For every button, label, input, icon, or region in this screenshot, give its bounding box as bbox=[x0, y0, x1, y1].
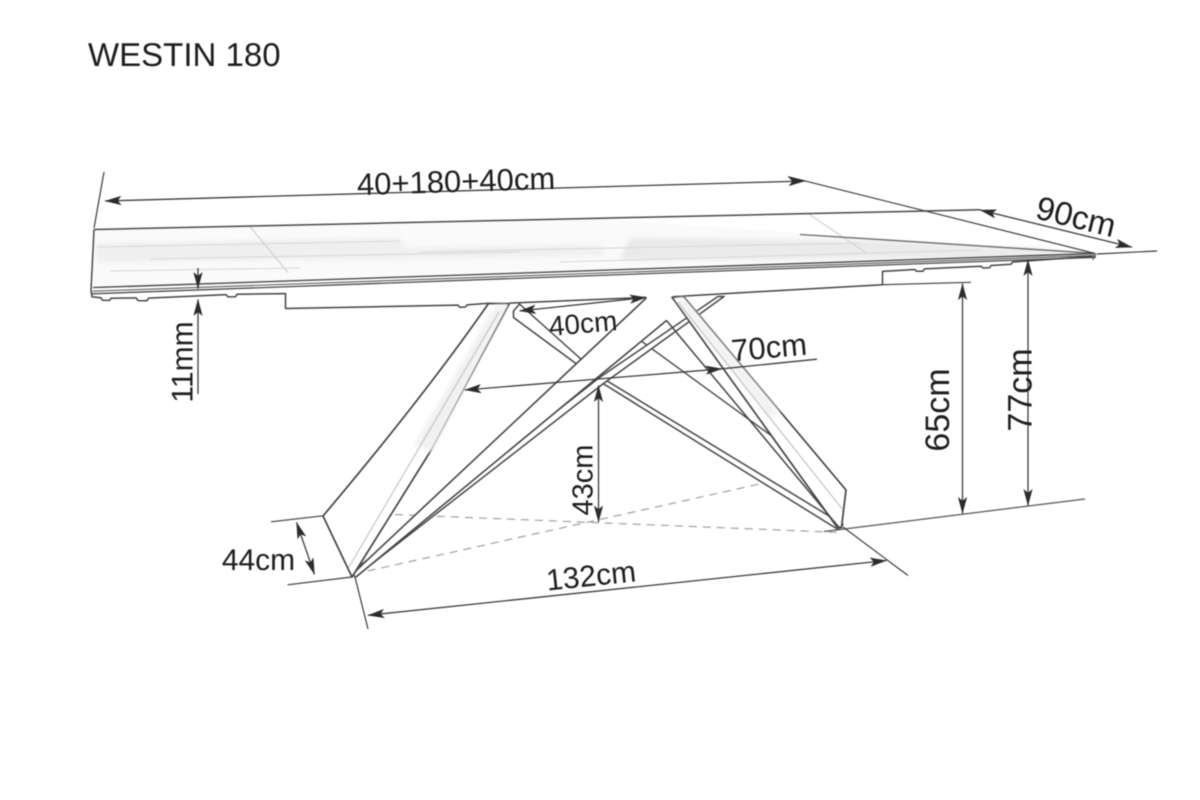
svg-text:70cm: 70cm bbox=[730, 327, 809, 369]
svg-text:43cm: 43cm bbox=[568, 445, 600, 516]
svg-text:77cm: 77cm bbox=[1002, 348, 1040, 431]
svg-text:65cm: 65cm bbox=[919, 368, 957, 451]
svg-text:44cm: 44cm bbox=[222, 544, 295, 577]
svg-text:40cm: 40cm bbox=[548, 305, 619, 342]
svg-text:40+180+40cm: 40+180+40cm bbox=[356, 161, 555, 202]
svg-text:WESTIN 180: WESTIN 180 bbox=[88, 36, 281, 73]
svg-text:11mm: 11mm bbox=[167, 321, 200, 402]
